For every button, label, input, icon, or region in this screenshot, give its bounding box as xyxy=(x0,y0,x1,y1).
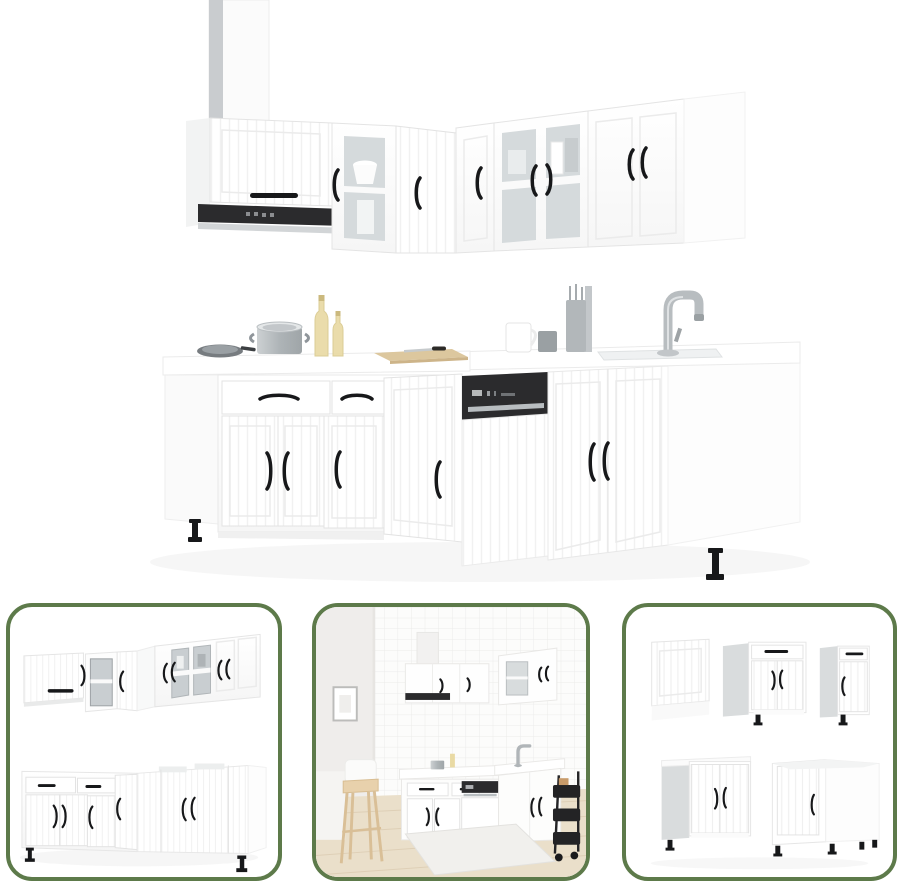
drawer-front xyxy=(332,381,384,414)
base-corner-cabinet xyxy=(384,374,462,542)
range-hood xyxy=(405,693,450,700)
wall-cabinets-left xyxy=(186,118,456,253)
jug-in-cabinet xyxy=(551,142,563,174)
thumbnail-room-scene[interactable] xyxy=(312,603,590,881)
main-product-photo[interactable] xyxy=(0,0,900,595)
wall-cabinets-right xyxy=(456,92,745,253)
bowl-in-cabinet xyxy=(353,165,377,184)
angle-view-illustration xyxy=(10,607,278,877)
knife xyxy=(432,347,446,351)
bottle xyxy=(450,754,455,768)
utensil-canister xyxy=(566,300,586,352)
narrow-base-cabinet-unit xyxy=(820,646,869,725)
sink-base-cabinet-unit xyxy=(662,757,751,851)
mug xyxy=(506,323,531,352)
wall-cabinets xyxy=(24,634,260,711)
thumbnail-individual-units[interactable] xyxy=(622,603,897,881)
corner-wall-door xyxy=(396,126,456,253)
base-cabinets xyxy=(22,764,266,854)
tableware xyxy=(506,284,592,352)
dishwasher xyxy=(462,372,548,566)
base-cabinets-right xyxy=(548,357,800,560)
oil-bottle xyxy=(315,300,328,356)
base-cabinet-unit xyxy=(723,642,806,725)
hood-duct xyxy=(417,632,438,665)
door-panel-unit xyxy=(652,639,709,720)
kitchen-set-main-illustration xyxy=(0,0,900,595)
individual-units-illustration xyxy=(626,607,893,877)
corner-base-cabinet-unit xyxy=(772,760,879,857)
cookware xyxy=(197,295,468,364)
oil-bottle xyxy=(333,315,343,356)
thumbnail-angle-view[interactable] xyxy=(6,603,282,881)
cup xyxy=(538,331,557,352)
drawer-front xyxy=(222,381,330,414)
hood-cabinet-handle xyxy=(250,193,298,198)
pot xyxy=(431,761,445,770)
range-hood-duct xyxy=(209,0,269,127)
floor-shadow xyxy=(651,857,869,869)
room-scene-illustration xyxy=(316,607,586,877)
